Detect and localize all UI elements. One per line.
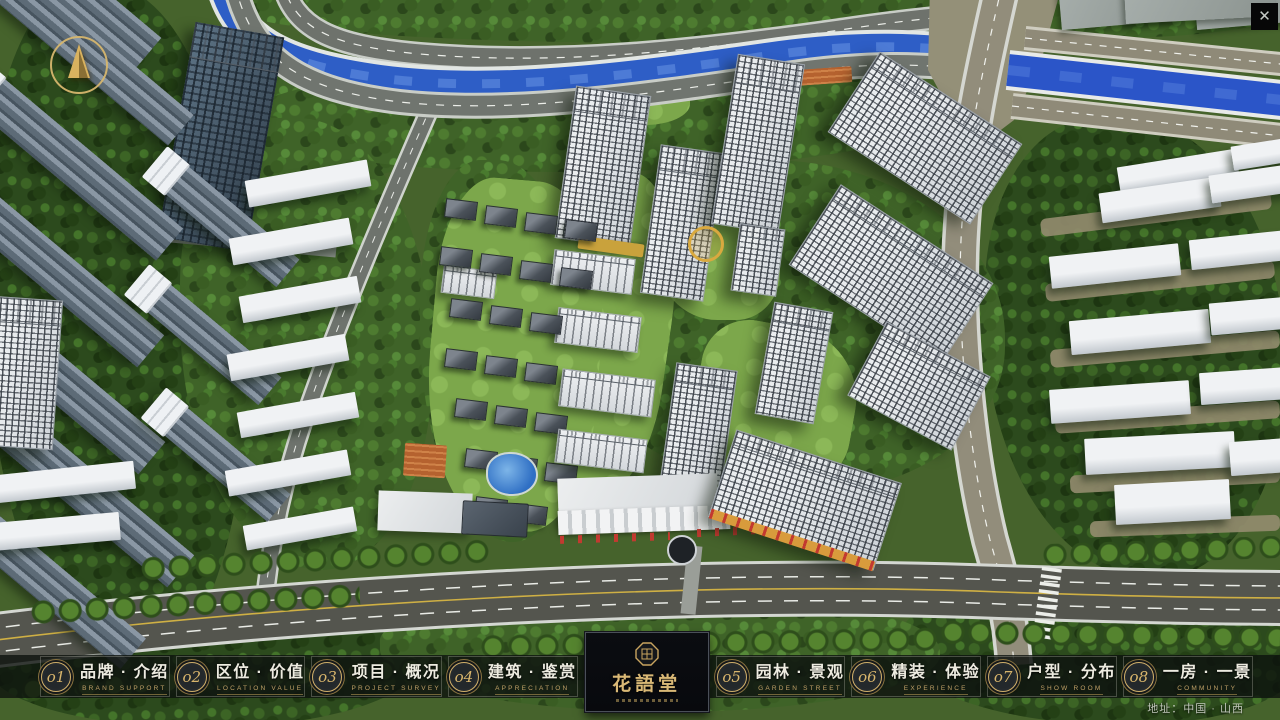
courtyard-house	[484, 355, 518, 378]
courtyard-house	[444, 198, 478, 221]
courtyard-house	[449, 298, 483, 321]
app-window: ✕ o1 品牌 · 介绍 BRAND SUPPORT o2 区位 · 价值 LO…	[0, 0, 1280, 720]
nav-item-brand-intro[interactable]: o1 品牌 · 介绍 BRAND SUPPORT	[40, 656, 170, 697]
courtyard-house	[494, 405, 528, 428]
nav-item-interior-experience[interactable]: o6 精装 · 体验 EXPERIENCE	[851, 656, 981, 697]
courtyard-house	[524, 212, 558, 235]
nav-item-project-overview[interactable]: o3 项目 · 概况 PROJECT SURVEY	[311, 656, 441, 697]
nav-item-floorplan-distribution[interactable]: o7 户型 · 分布 SHOW ROOM	[987, 656, 1117, 697]
courtyard-house	[559, 267, 593, 290]
nav-label-en: COMMUNITY	[1177, 685, 1237, 695]
swimming-pool	[486, 452, 538, 496]
compass-icon	[50, 36, 108, 94]
nav-label-zh: 户型 · 分布	[1027, 658, 1116, 682]
nav-labels: 户型 · 分布 SHOW ROOM	[1027, 658, 1116, 695]
nav-label-en: EXPERIENCE	[904, 685, 968, 695]
nav-label-en: LOCATION VALUE	[217, 685, 303, 695]
courtyard-house	[489, 305, 523, 328]
number-badge: o8	[1124, 662, 1154, 692]
badge-number: o7	[994, 668, 1013, 686]
number-badge: o1	[41, 662, 71, 692]
rooftop	[0, 297, 62, 326]
badge-number: o5	[722, 668, 741, 686]
gold-landmark	[688, 226, 724, 262]
residential-tower	[730, 223, 785, 297]
badge-number: o3	[318, 668, 337, 686]
nav-labels: 精装 · 体验 EXPERIENCE	[891, 658, 980, 695]
nav-label-zh: 精装 · 体验	[891, 658, 980, 682]
courtyard-house	[524, 362, 558, 385]
courtyard-house	[454, 398, 488, 421]
aerial-map	[0, 0, 1280, 720]
nav-item-location-value[interactable]: o2 区位 · 价值 LOCATION VALUE	[176, 656, 306, 697]
courtyard-house	[564, 219, 598, 242]
nav-label-en: GARDEN STREET	[758, 685, 842, 695]
rooftop	[0, 0, 25, 5]
seal-icon	[635, 642, 659, 666]
nav-label-zh: 园林 · 景观	[756, 658, 845, 682]
badge-number: o4	[455, 668, 474, 686]
white-slab-building	[1209, 297, 1280, 336]
nav-label-zh: 建筑 · 鉴赏	[488, 658, 577, 682]
address-text: 地址：中国 · 山西	[1147, 700, 1244, 716]
nav-item-garden-landscape[interactable]: o5 园林 · 景观 GARDEN STREET	[716, 656, 846, 697]
white-slab-building	[1199, 367, 1280, 405]
badge-number: o2	[182, 668, 201, 686]
nav-label-zh: 品牌 · 介绍	[80, 658, 169, 682]
number-badge: o4	[449, 662, 479, 692]
flat-roof-building	[377, 490, 472, 533]
badge-number: o8	[1130, 668, 1149, 686]
bottom-navbar: o1 品牌 · 介绍 BRAND SUPPORT o2 区位 · 价值 LOCA…	[0, 655, 1280, 698]
residential-tower	[0, 296, 63, 451]
courtyard-house	[479, 253, 513, 276]
terracotta-building	[403, 443, 447, 479]
courtyard-house	[484, 205, 518, 228]
nav-item-architecture[interactable]: o4 建筑 · 鉴赏 APPRECIATION	[448, 656, 578, 697]
courtyard-house	[439, 246, 473, 269]
nav-labels: 品牌 · 介绍 BRAND SUPPORT	[80, 658, 169, 695]
entrance-circle	[667, 535, 697, 565]
nav-labels: 区位 · 价值 LOCATION VALUE	[216, 658, 305, 695]
nav-labels: 园林 · 景观 GARDEN STREET	[756, 658, 845, 695]
nav-label-zh: 区位 · 价值	[216, 658, 305, 682]
courtyard-house	[519, 260, 553, 283]
courtyard-house	[444, 348, 478, 371]
pavilion-roof	[461, 500, 529, 537]
nav-label-en: PROJECT SURVEY	[351, 685, 440, 695]
close-button[interactable]: ✕	[1251, 3, 1278, 30]
nav-label-en: APPRECIATION	[495, 685, 569, 695]
north-arrow-shade	[79, 50, 88, 78]
white-slab-building	[1114, 479, 1231, 525]
brand-logo-title: 花語堂	[612, 669, 681, 696]
number-badge: o2	[177, 662, 207, 692]
number-badge: o5	[717, 662, 747, 692]
courtyard-house	[529, 312, 563, 335]
nav-labels: 建筑 · 鉴赏 APPRECIATION	[488, 658, 577, 695]
nav-labels: 项目 · 概况 PROJECT SURVEY	[351, 658, 440, 695]
brand-logo-panel[interactable]: 花語堂	[585, 632, 709, 712]
nav-label-en: SHOW ROOM	[1040, 685, 1102, 695]
number-badge: o7	[988, 662, 1018, 692]
nav-item-room-view[interactable]: o8 一房 · 一景 COMMUNITY	[1123, 656, 1253, 697]
badge-number: o6	[858, 668, 877, 686]
white-slab-building	[1229, 438, 1280, 476]
nav-label-zh: 项目 · 概况	[352, 658, 441, 682]
nav-labels: 一房 · 一景 COMMUNITY	[1163, 658, 1252, 695]
number-badge: o3	[312, 662, 342, 692]
badge-number: o1	[47, 668, 66, 686]
number-badge: o6	[852, 662, 882, 692]
nav-label-zh: 一房 · 一景	[1163, 658, 1252, 682]
nav-label-en: BRAND SUPPORT	[82, 685, 166, 695]
brand-logo-subtext	[616, 699, 678, 702]
